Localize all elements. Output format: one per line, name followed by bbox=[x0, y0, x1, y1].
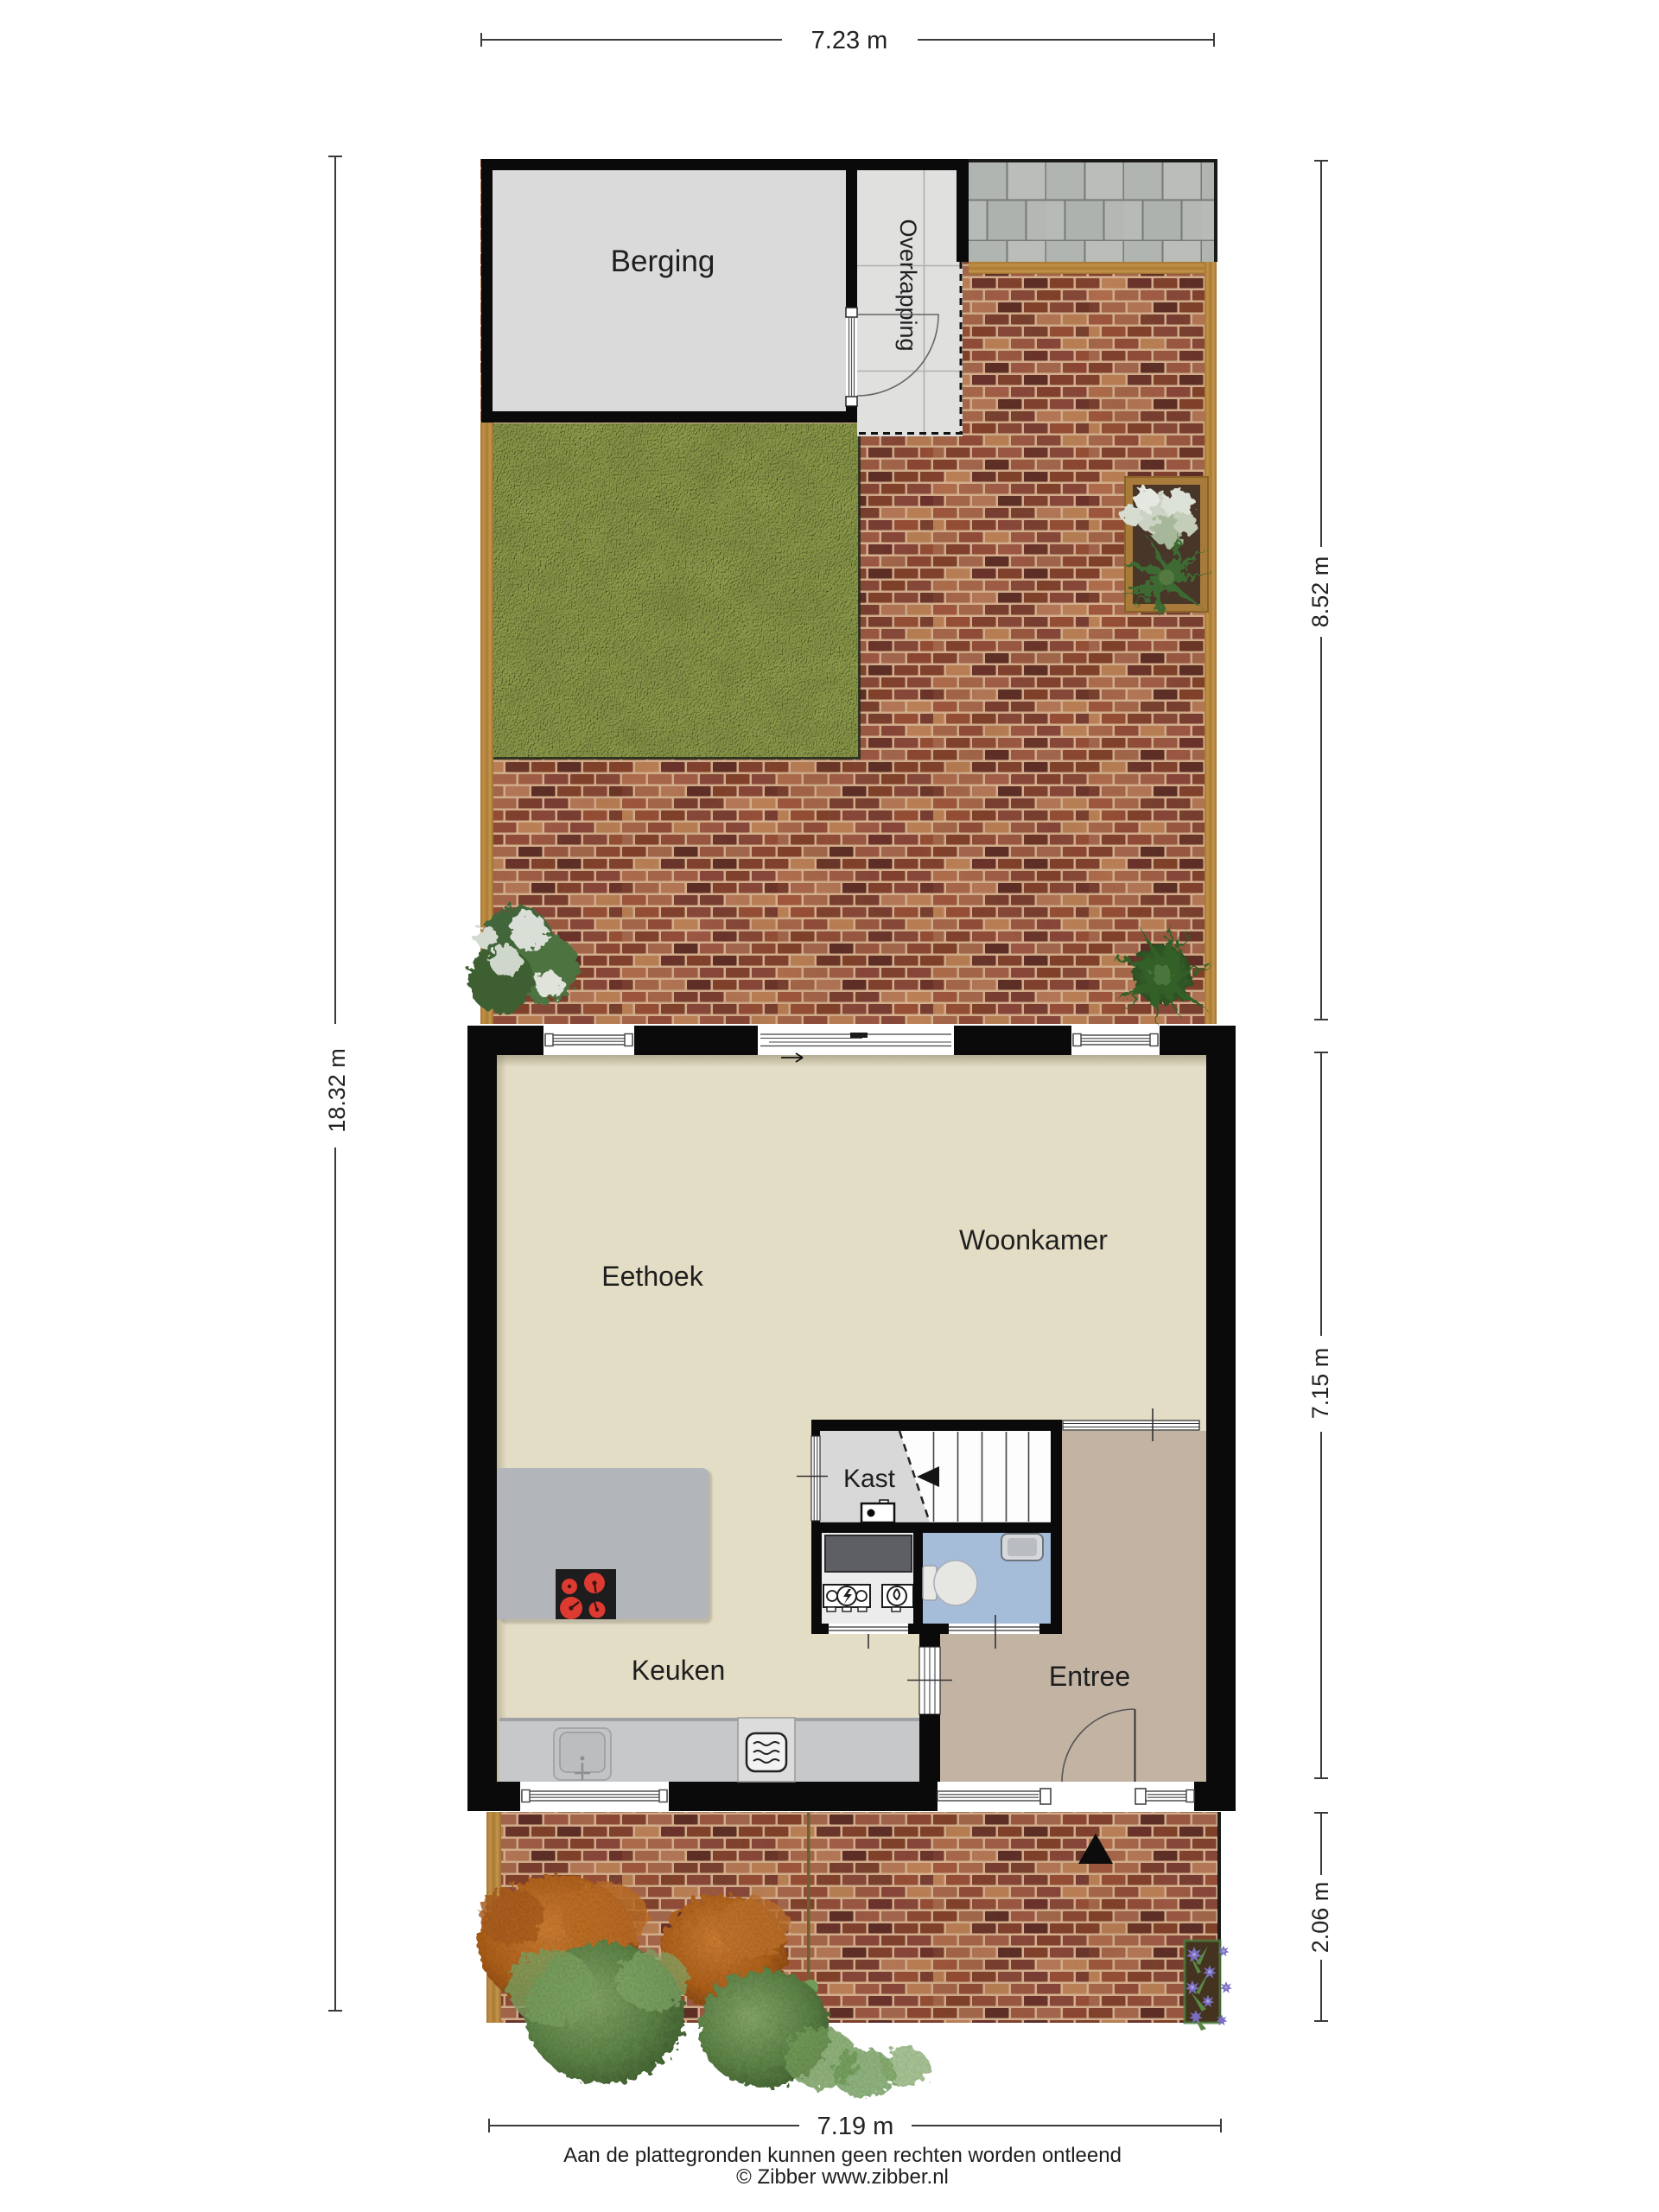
svg-text:Woonkamer: Woonkamer bbox=[959, 1224, 1108, 1255]
svg-text:Kast: Kast bbox=[843, 1465, 896, 1493]
svg-text:Overkapping: Overkapping bbox=[895, 219, 921, 351]
svg-text:Berging: Berging bbox=[611, 245, 715, 278]
svg-text:Keuken: Keuken bbox=[632, 1655, 726, 1686]
svg-text:Eethoek: Eethoek bbox=[601, 1261, 703, 1292]
svg-text:Entree: Entree bbox=[1049, 1661, 1130, 1692]
svg-text:7.15 m: 7.15 m bbox=[1307, 1348, 1333, 1420]
svg-text:7.19 m: 7.19 m bbox=[817, 2113, 894, 2140]
svg-text:Aan de plattegronden kunnen ge: Aan de plattegronden kunnen geen rechten… bbox=[563, 2144, 1122, 2167]
svg-text:2.06 m: 2.06 m bbox=[1307, 1882, 1333, 1954]
svg-text:18.32 m: 18.32 m bbox=[324, 1048, 350, 1133]
svg-text:8.52 m: 8.52 m bbox=[1307, 556, 1333, 628]
svg-text:© Zibber www.zibber.nl: © Zibber www.zibber.nl bbox=[736, 2165, 949, 2189]
svg-text:7.23 m: 7.23 m bbox=[811, 27, 888, 54]
